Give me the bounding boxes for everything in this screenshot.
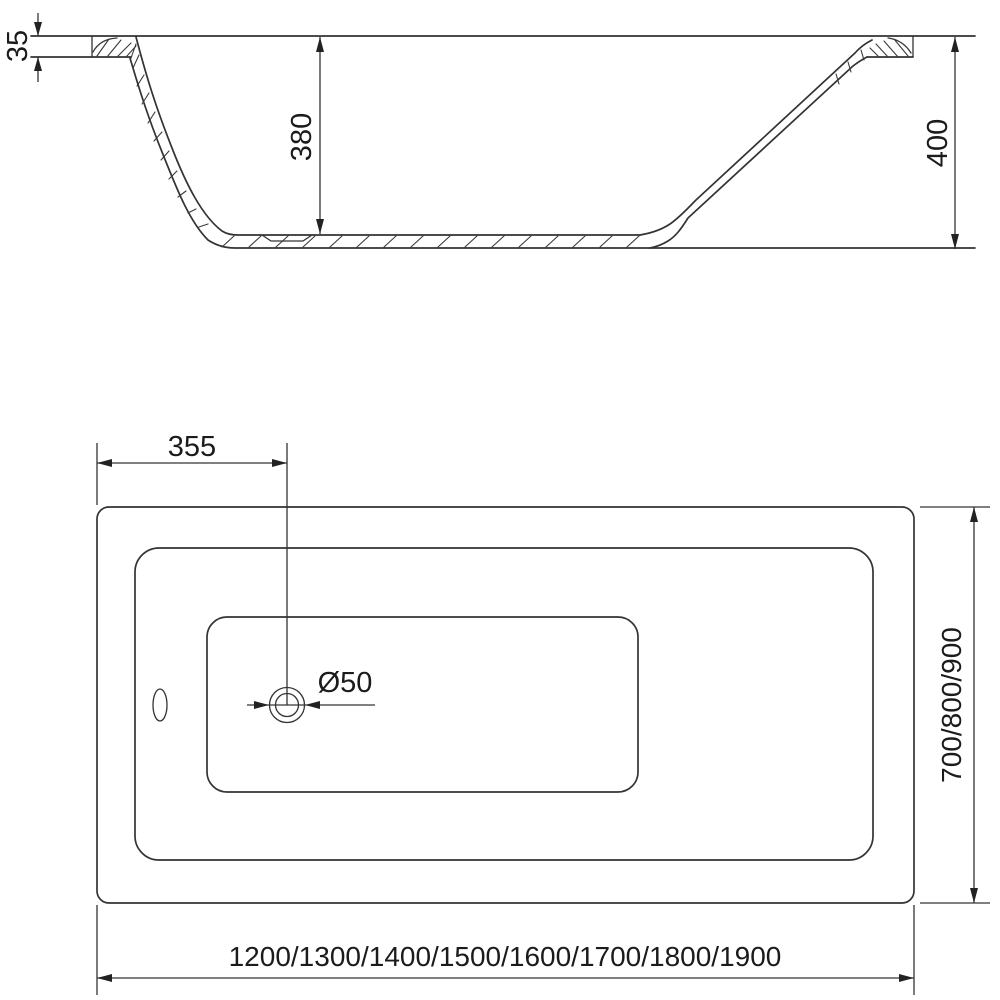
dim-inner-depth: 380 bbox=[286, 37, 324, 234]
dim-rim-thickness: 35 bbox=[2, 13, 42, 82]
technical-drawing-page: 35 380 400 bbox=[0, 0, 1000, 1000]
dim-label-length-options: 1200/1300/1400/1500/1600/1700/1800/1900 bbox=[229, 941, 782, 972]
arrowhead-down bbox=[951, 234, 959, 249]
wall-left-outer-and-floor bbox=[130, 58, 975, 248]
arrowhead-right bbox=[272, 459, 287, 467]
arrowhead-up bbox=[34, 57, 42, 71]
hatch-rim-right bbox=[870, 39, 908, 57]
dim-label-total-height: 400 bbox=[922, 119, 954, 167]
arrowhead-up bbox=[970, 507, 978, 522]
arrowhead-down bbox=[316, 219, 324, 234]
dim-drain-diameter: Ø50 bbox=[247, 667, 375, 709]
cross-section-view: 35 380 400 bbox=[2, 13, 975, 249]
drain-recess bbox=[262, 235, 312, 241]
overflow-hole bbox=[153, 689, 167, 721]
arrowhead-right bbox=[254, 701, 269, 709]
dim-total-height: 400 bbox=[922, 37, 959, 249]
dim-label-drain-diameter: Ø50 bbox=[318, 667, 373, 699]
arrowhead-left bbox=[97, 459, 112, 467]
wall-right-inner bbox=[640, 40, 872, 235]
arrowhead-down bbox=[970, 888, 978, 903]
dim-label-width-options: 700/800/900 bbox=[936, 627, 967, 783]
inner-rim-rect bbox=[135, 548, 873, 860]
dim-width-options: 700/800/900 bbox=[920, 507, 990, 903]
arrowhead-left bbox=[305, 701, 320, 709]
dim-drain-offset: 355 bbox=[97, 431, 287, 705]
dim-label-rim-thickness: 35 bbox=[2, 30, 34, 62]
arrowhead-right bbox=[899, 974, 914, 982]
dim-label-drain-offset: 355 bbox=[168, 431, 216, 463]
arrowhead-down bbox=[34, 22, 42, 36]
wall-left-inner-and-bottom-inner bbox=[136, 37, 640, 235]
wall-right-outer bbox=[650, 57, 867, 248]
arrowhead-up bbox=[951, 37, 959, 52]
tub-profile bbox=[31, 36, 975, 248]
arrowhead-up bbox=[316, 37, 324, 52]
plan-view: 355 Ø50 700/800/900 bbox=[97, 431, 990, 995]
section-hatching bbox=[97, 39, 908, 247]
dim-label-inner-depth: 380 bbox=[286, 113, 318, 161]
tub-outline-top-view bbox=[97, 507, 914, 903]
bathtub-technical-drawing: 35 380 400 bbox=[0, 0, 1000, 1000]
dim-length-options: 1200/1300/1400/1500/1600/1700/1800/1900 bbox=[97, 905, 914, 995]
arrowhead-left bbox=[97, 974, 112, 982]
outer-rim-rect bbox=[97, 507, 914, 903]
